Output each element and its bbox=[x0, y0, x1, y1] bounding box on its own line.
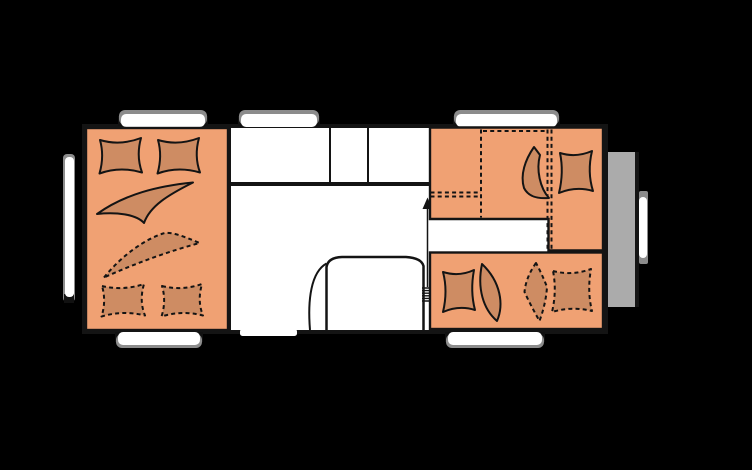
window-top-2 bbox=[238, 110, 320, 127]
double-bed-area bbox=[86, 128, 228, 330]
floorplan-canvas bbox=[0, 0, 752, 470]
pillow bbox=[158, 138, 201, 174]
pillow bbox=[100, 138, 143, 174]
counter-divider bbox=[329, 128, 331, 184]
caravan-floorplan bbox=[0, 0, 752, 470]
pillow bbox=[559, 151, 593, 193]
pillow-dashed bbox=[162, 284, 204, 317]
window-glass bbox=[65, 157, 74, 297]
window-bottom-2 bbox=[445, 332, 545, 348]
bedroom-partition-wall bbox=[227, 128, 231, 330]
window-glass bbox=[639, 197, 647, 258]
window-top-3 bbox=[453, 110, 560, 127]
window-glass bbox=[118, 332, 200, 345]
entry-step bbox=[240, 329, 297, 336]
pillow-dashed bbox=[552, 269, 592, 312]
pillow-dashed bbox=[102, 284, 146, 317]
pillow bbox=[443, 270, 475, 312]
window-glass bbox=[241, 114, 317, 127]
window-top-1 bbox=[118, 110, 208, 127]
window-left-side bbox=[63, 154, 75, 303]
window-glass bbox=[121, 114, 205, 127]
window-glass bbox=[456, 114, 557, 127]
window-bottom-1 bbox=[115, 332, 203, 348]
window-front bbox=[639, 191, 648, 264]
counter-divider bbox=[367, 128, 369, 184]
front-storage-edge bbox=[635, 152, 639, 307]
bunk-bed-area bbox=[430, 253, 603, 330]
window-glass bbox=[448, 332, 542, 345]
front-storage-panel bbox=[608, 152, 636, 307]
